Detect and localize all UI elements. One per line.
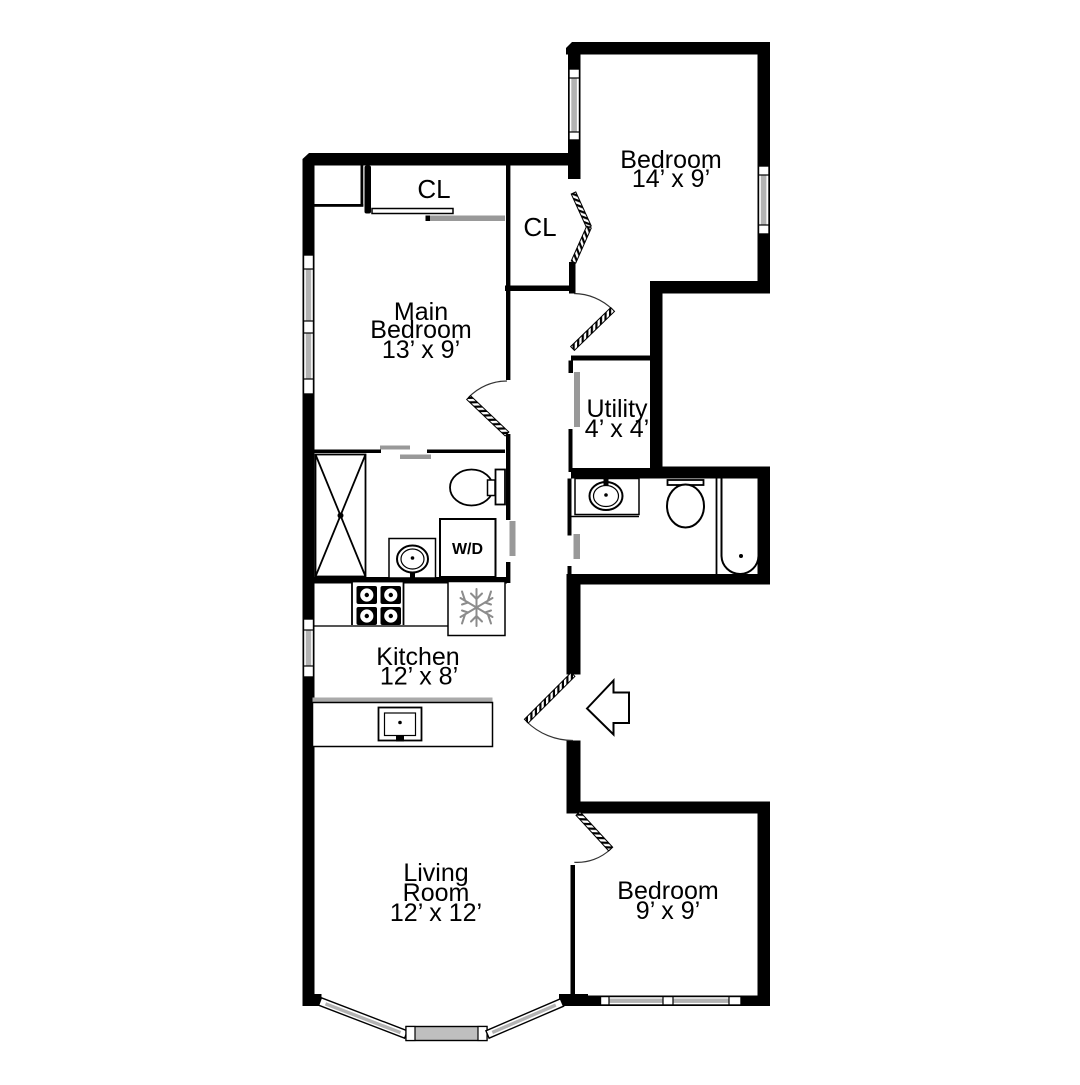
svg-text:12’ x 12’: 12’ x 12’ xyxy=(390,899,482,927)
svg-text:CL: CL xyxy=(417,174,450,204)
svg-text:CL: CL xyxy=(523,212,556,242)
svg-text:4’ x 4’: 4’ x 4’ xyxy=(585,415,649,443)
svg-text:12’ x 8’: 12’ x 8’ xyxy=(380,663,458,691)
svg-text:13’ x 9’: 13’ x 9’ xyxy=(382,336,460,364)
svg-text:14’ x 9’: 14’ x 9’ xyxy=(632,165,710,193)
svg-text:W/D: W/D xyxy=(452,541,483,558)
svg-text:9’ x 9’: 9’ x 9’ xyxy=(636,897,700,925)
